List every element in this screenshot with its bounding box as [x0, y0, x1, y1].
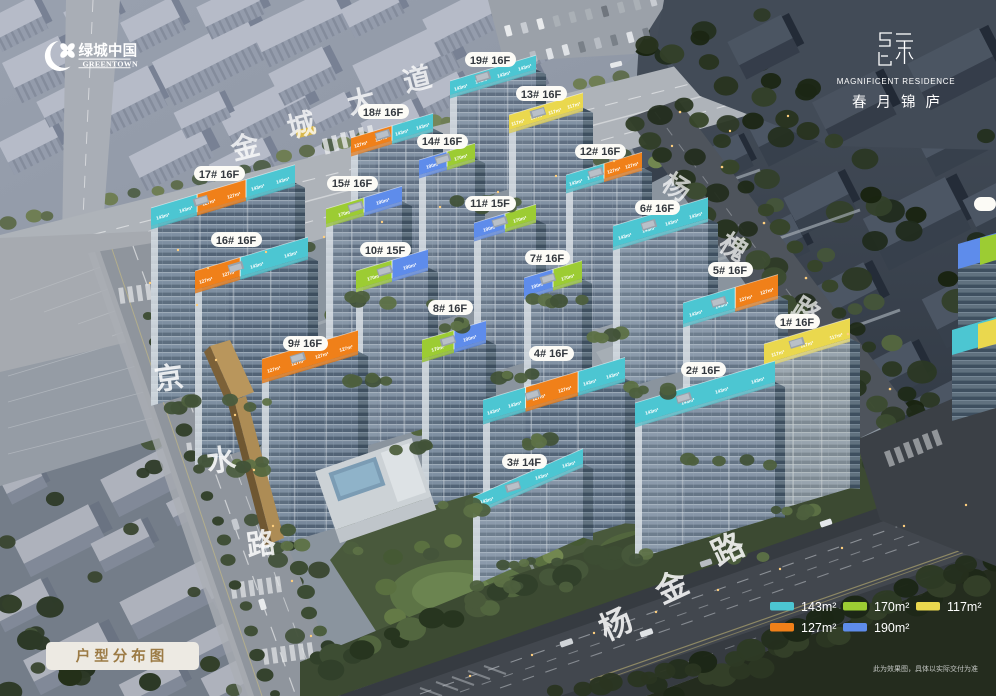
svg-text:此为效果图，具体以实际交付为准: 此为效果图，具体以实际交付为准 — [873, 664, 978, 673]
svg-text:143m²: 143m² — [801, 600, 836, 614]
svg-text:18# 16F: 18# 16F — [363, 107, 404, 119]
svg-text:10# 15F: 10# 15F — [365, 245, 406, 257]
svg-text:8# 16F: 8# 16F — [433, 303, 468, 315]
svg-text:16# 16F: 16# 16F — [216, 235, 257, 247]
svg-text:15# 16F: 15# 16F — [332, 178, 373, 190]
svg-text:190m²: 190m² — [874, 621, 909, 635]
svg-text:5# 16F: 5# 16F — [713, 265, 748, 277]
svg-text:7# 16F: 7# 16F — [530, 253, 565, 265]
svg-text:绿城中国: 绿城中国 — [79, 42, 138, 60]
svg-text:127m²: 127m² — [801, 621, 836, 635]
svg-text:水: 水 — [204, 442, 238, 479]
svg-text:12# 16F: 12# 16F — [580, 146, 621, 158]
svg-text:6# 16F: 6# 16F — [640, 203, 675, 215]
svg-text:路: 路 — [244, 526, 278, 563]
svg-text:170m²: 170m² — [874, 600, 909, 614]
svg-text:11# 15F: 11# 15F — [470, 198, 510, 210]
svg-text:2# 16F: 2# 16F — [686, 365, 721, 377]
svg-text:户型分布图: 户型分布图 — [76, 647, 169, 665]
svg-text:GREENTOWN: GREENTOWN — [83, 59, 138, 68]
svg-text:春月锦庐: 春月锦庐 — [852, 94, 950, 111]
svg-text:13# 16F: 13# 16F — [521, 89, 562, 101]
svg-text:MAGNIFICENT RESIDENCE: MAGNIFICENT RESIDENCE — [837, 77, 956, 86]
svg-text:京: 京 — [152, 359, 185, 397]
svg-text:17# 16F: 17# 16F — [199, 169, 240, 181]
svg-text:1# 16F: 1# 16F — [780, 317, 815, 329]
svg-text:117m²: 117m² — [947, 600, 982, 614]
svg-text:3# 14F: 3# 14F — [507, 457, 542, 469]
svg-text:4# 16F: 4# 16F — [534, 348, 569, 360]
svg-text:14# 16F: 14# 16F — [422, 136, 463, 148]
svg-text:9# 16F: 9# 16F — [288, 338, 323, 350]
svg-text:19# 16F: 19# 16F — [470, 55, 511, 67]
